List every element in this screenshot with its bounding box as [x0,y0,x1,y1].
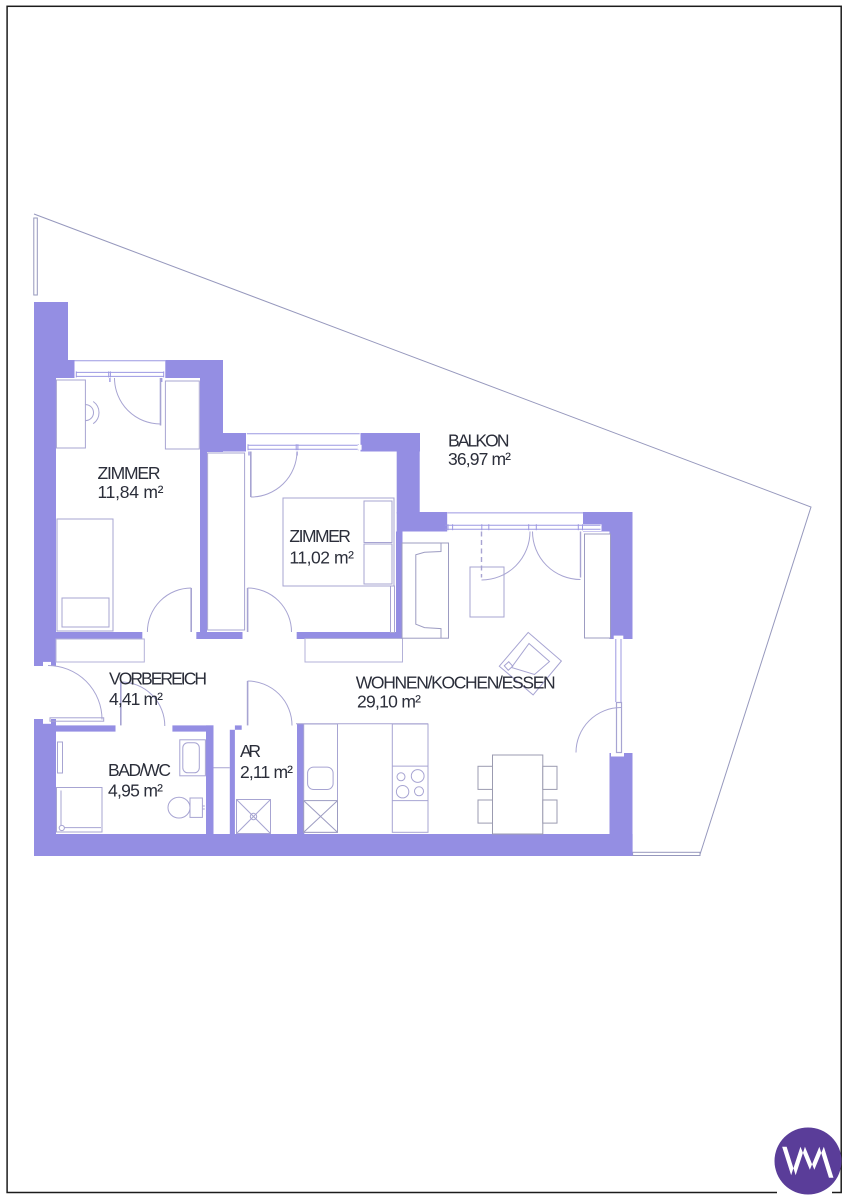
svg-text:36,97 m²: 36,97 m² [448,449,511,469]
svg-text:AR: AR [240,741,261,761]
svg-text:29,10 m²: 29,10 m² [357,692,421,712]
svg-text:11,84 m²: 11,84 m² [98,482,164,502]
svg-text:BALKON: BALKON [448,431,510,451]
svg-text:VORBEREICH: VORBEREICH [109,669,207,689]
svg-text:ZIMMER: ZIMMER [98,463,161,483]
svg-text:ZIMMER: ZIMMER [289,526,351,546]
svg-text:BAD/WC: BAD/WC [108,760,171,780]
svg-text:4,95 m²: 4,95 m² [108,781,163,801]
svg-text:2,11 m²: 2,11 m² [240,762,293,782]
svg-text:WOHNEN/KOCHEN/ESSEN: WOHNEN/KOCHEN/ESSEN [356,673,556,693]
svg-text:11,02 m²: 11,02 m² [289,548,354,568]
svg-text:4,41 m²: 4,41 m² [109,689,163,709]
